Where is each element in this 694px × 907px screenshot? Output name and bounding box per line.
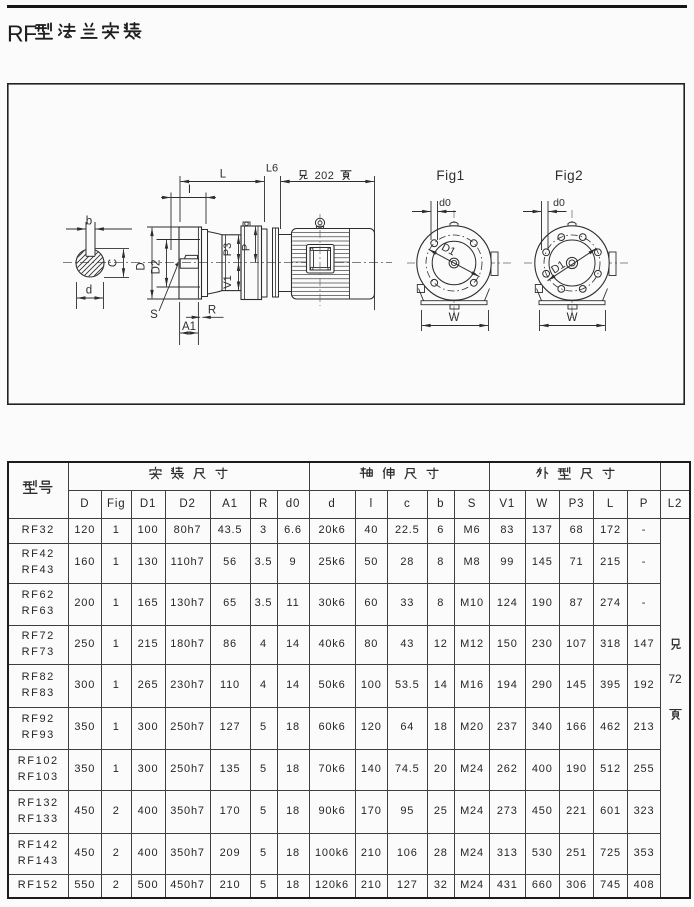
svg-text:D2: D2 xyxy=(151,260,163,275)
svg-text:P3: P3 xyxy=(222,243,234,256)
svg-text:D: D xyxy=(136,262,148,270)
svg-text:W: W xyxy=(449,312,460,324)
svg-text:b: b xyxy=(86,216,92,228)
svg-text:Fig2: Fig2 xyxy=(555,168,583,183)
svg-text:L: L xyxy=(220,169,227,181)
svg-text:d: d xyxy=(86,285,92,297)
svg-text:d0: d0 xyxy=(439,197,451,209)
svg-text:W: W xyxy=(567,312,578,324)
svg-text:L6: L6 xyxy=(266,163,278,175)
svg-text:R: R xyxy=(208,305,216,317)
svg-text:Fig1: Fig1 xyxy=(436,168,464,183)
svg-text:C: C xyxy=(108,259,120,267)
svg-text:A1: A1 xyxy=(182,321,196,333)
svg-text:I: I xyxy=(188,184,191,196)
svg-text:S: S xyxy=(150,309,158,321)
svg-text:d0: d0 xyxy=(553,197,565,209)
svg-text:202: 202 xyxy=(315,170,335,182)
svg-text:P: P xyxy=(241,244,253,251)
svg-text:V1: V1 xyxy=(222,275,234,288)
